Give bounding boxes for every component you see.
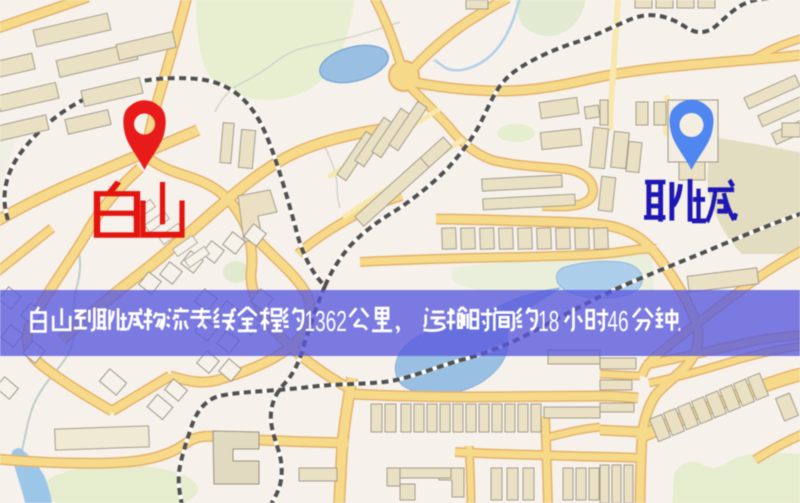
svg-text:1362: 1362	[304, 306, 347, 338]
svg-text:.: .	[677, 306, 682, 338]
svg-text:46: 46	[607, 306, 628, 338]
svg-text:18: 18	[538, 306, 559, 338]
